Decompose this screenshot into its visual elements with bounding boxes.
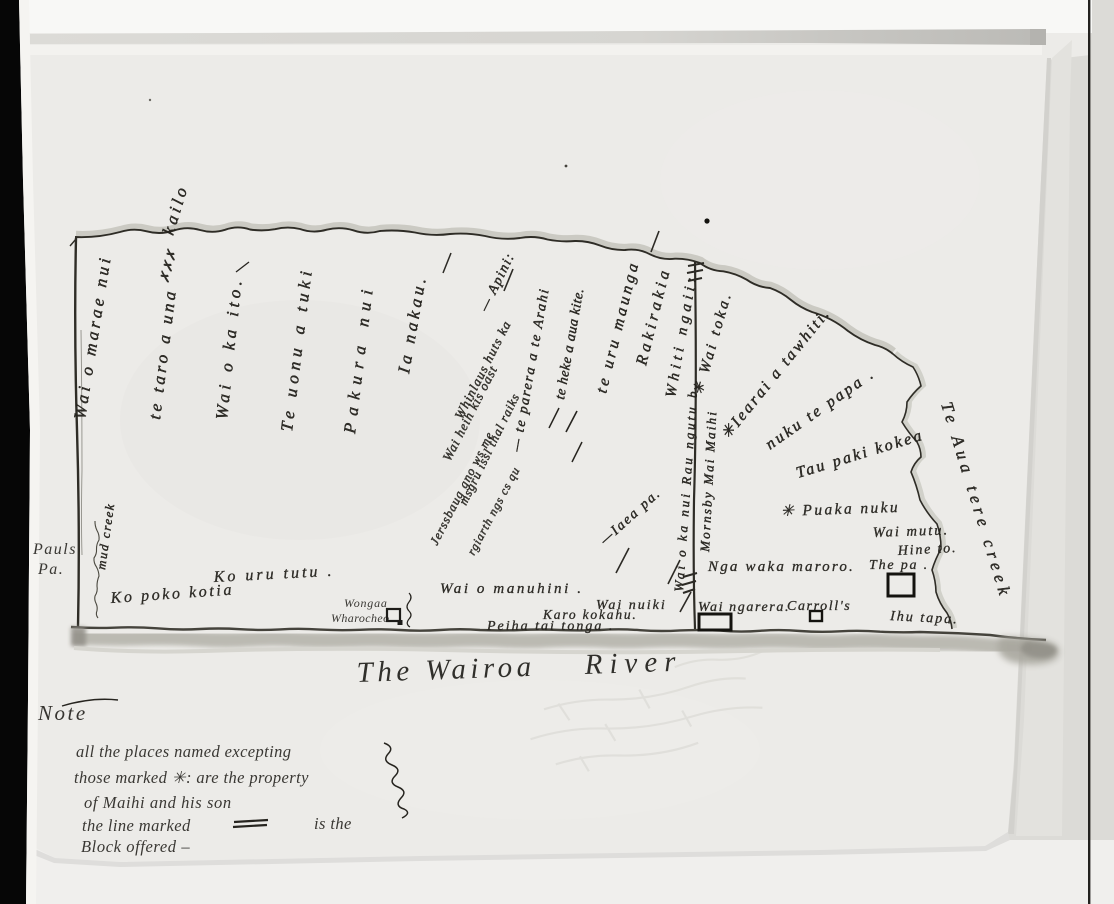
svg-text:Wongaa: Wongaa [344, 596, 388, 610]
svg-text:all the places named excepting: all the places named excepting [76, 742, 291, 761]
svg-text:those marked ✳: are the proper: those marked ✳: are the property [74, 768, 309, 787]
svg-text:Wai o manuhini .: Wai o manuhini . [440, 581, 584, 597]
svg-text:The pa .: The pa . [869, 558, 929, 573]
svg-text:Pauls: Pauls [32, 541, 77, 558]
svg-text:Note: Note [37, 701, 88, 725]
svg-text:Wai mutu.: Wai mutu. [873, 522, 950, 541]
svg-text:is the: is the [314, 814, 352, 833]
svg-text:Peiha tai tonga .: Peiha tai tonga . [486, 619, 614, 634]
svg-text:Wharocheo: Wharocheo [331, 611, 389, 625]
svg-text:Block offered –: Block offered – [81, 837, 190, 856]
svg-text:Hine to.: Hine to. [896, 541, 957, 559]
svg-text:The Wairoa: The Wairoa [356, 651, 536, 689]
svg-text:of Maihi and his son: of Maihi and his son [84, 793, 232, 812]
svg-text:Nga waka maroro.: Nga waka maroro. [707, 559, 855, 575]
svg-text:the line marked: the line marked [82, 816, 191, 835]
svg-text:Pa.: Pa. [37, 561, 64, 578]
svg-text:River: River [583, 646, 683, 681]
